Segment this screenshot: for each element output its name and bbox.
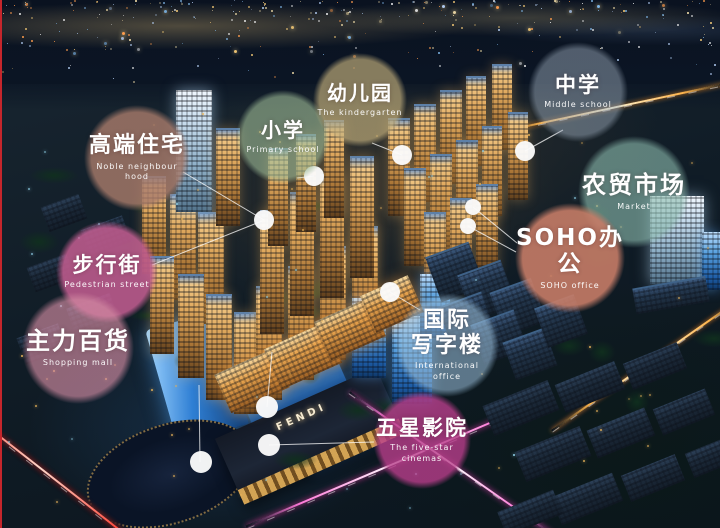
bubble-title: 主力百货 — [26, 328, 130, 356]
bubble-subtitle: Shopping mall — [43, 358, 113, 368]
bubble-title: 小学 — [261, 119, 305, 142]
label-bubbles-layer: 高端住宅Noble neighbour hood小学Primary school… — [0, 0, 720, 528]
bubble-subtitle: Primary school — [246, 145, 319, 155]
label-bubble-soho-office: SOHO办公SOHO office — [515, 203, 625, 313]
bubble-subtitle: Market — [617, 202, 651, 212]
masterplan-night-rendering: FENDI 高端住宅Noble neighbour hood小学Primary … — [0, 0, 720, 528]
bubble-title: 五星影院 — [376, 416, 468, 440]
bubble-subtitle: International office — [415, 361, 479, 382]
bubble-title: 国际 写字楼 — [411, 308, 483, 359]
bubble-subtitle: Pedestrian street — [64, 280, 149, 290]
bubble-subtitle: Noble neighbour hood — [84, 162, 190, 183]
bubble-title: SOHO办公 — [515, 225, 625, 278]
label-bubble-kindergarten: 幼儿园The kindergarten — [313, 53, 407, 147]
bubble-subtitle: The five-star cinemas — [373, 443, 471, 464]
bubble-title: 农贸市场 — [582, 172, 686, 200]
bubble-subtitle: Middle school — [544, 100, 612, 110]
bubble-title: 高端住宅 — [89, 133, 185, 158]
label-bubble-noble-residence: 高端住宅Noble neighbour hood — [84, 105, 190, 211]
bubble-title: 步行街 — [73, 253, 142, 277]
bubble-title: 幼儿园 — [327, 82, 393, 105]
label-bubble-international-office: 国际 写字楼International office — [395, 293, 499, 397]
bubble-subtitle: SOHO office — [540, 281, 599, 291]
label-bubble-five-star-cinema: 五星影院The five-star cinemas — [373, 391, 471, 489]
label-bubble-shopping-mall: 主力百货Shopping mall — [22, 292, 134, 404]
bubble-title: 中学 — [555, 73, 601, 97]
left-edge-red-line — [0, 0, 2, 528]
bubble-subtitle: The kindergarten — [318, 108, 403, 118]
label-bubble-middle-school: 中学Middle school — [528, 42, 628, 142]
